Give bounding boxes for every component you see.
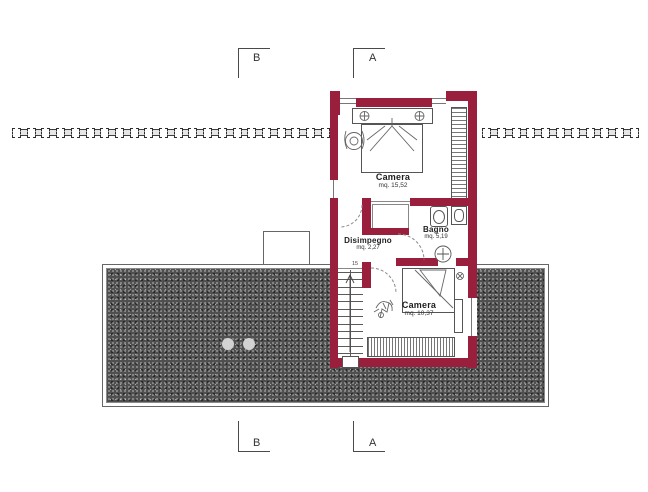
label-camera-bottom: Camera mq. 10,37 <box>385 300 453 318</box>
stairs-step-number: 15 <box>352 261 358 267</box>
sketch-layer <box>0 0 648 492</box>
label-disimpegno: Disimpegno mq. 2,27 <box>332 236 404 252</box>
round-fixture <box>435 246 451 262</box>
room-name: Bagno <box>408 225 464 234</box>
room-area: mq. 10,37 <box>385 310 453 317</box>
floor-plan-canvas: B A B A <box>0 0 648 492</box>
label-bagno: Bagno mq. 5,19 <box>408 225 464 241</box>
bed-fold-lines <box>367 118 417 151</box>
door-arc-camera-top <box>340 205 362 227</box>
room-area: mq. 2,27 <box>332 245 404 252</box>
room-name: Disimpegno <box>332 236 404 245</box>
room-name: Camera <box>358 172 428 182</box>
room-area: mq. 5,19 <box>408 234 464 241</box>
label-camera-top: Camera mq. 15,52 <box>358 172 428 190</box>
wall-symbol <box>457 273 464 280</box>
stairs-arrow <box>346 275 354 352</box>
room-name: Camera <box>385 300 453 310</box>
door-arc-camera-bottom <box>371 268 396 293</box>
room-area: mq. 15,52 <box>358 182 428 189</box>
armchair-sketch <box>345 131 364 150</box>
